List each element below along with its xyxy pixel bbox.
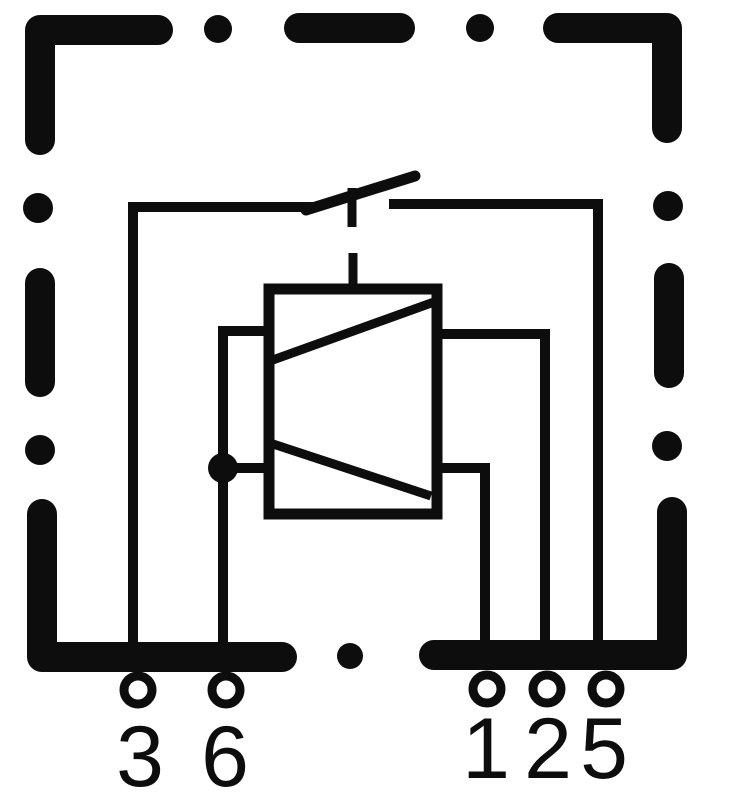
wire-coil-right-to-pin1 xyxy=(437,468,485,650)
frame-right-dot-lower xyxy=(652,431,682,461)
wire-coil-right-to-pin2 xyxy=(437,334,545,650)
pin-label-6: 6 xyxy=(201,709,249,800)
frame-bottom-left-corner-bar xyxy=(42,514,282,657)
terminal-ring-icon-pin2 xyxy=(533,675,561,703)
pin-label-3: 3 xyxy=(116,709,164,800)
frame-top-left-corner-dash xyxy=(40,30,158,140)
frame-top-dot-right xyxy=(466,14,494,42)
relay-schematic-canvas: 3 6 1 2 5 xyxy=(0,0,729,800)
dashed-frame-icon xyxy=(23,14,683,669)
frame-left-dot-lower xyxy=(25,435,55,465)
frame-bottom-right-corner-bar xyxy=(434,512,672,655)
wire-coil-left-to-pin6 xyxy=(223,331,269,650)
junction-dot-icon xyxy=(208,453,238,483)
pin-labels: 3 6 1 2 5 xyxy=(116,701,628,800)
internal-circuit xyxy=(133,176,598,650)
relay-wiring-diagram-page: 3 6 1 2 5 xyxy=(0,0,729,800)
wire-switch-to-pin5 xyxy=(389,204,598,650)
frame-top-dot-left xyxy=(204,15,232,43)
coil-lower-diagonal xyxy=(270,443,431,496)
frame-top-right-corner-dash xyxy=(558,28,667,128)
frame-bottom-middle-dot xyxy=(337,643,363,669)
terminal-ring-icon-pin5 xyxy=(592,675,620,703)
pin-label-2: 2 xyxy=(524,701,572,797)
terminal-ring-icon-pin1 xyxy=(473,675,501,703)
frame-right-dot-upper xyxy=(653,191,683,221)
terminal-ring-icon-pin3 xyxy=(124,676,152,704)
terminal-ring-icon-pin6 xyxy=(212,676,240,704)
terminals xyxy=(124,675,620,704)
pin-label-1: 1 xyxy=(462,701,510,797)
pin-label-5: 5 xyxy=(580,701,628,797)
coil-upper-diagonal xyxy=(270,302,434,361)
frame-left-dot-upper xyxy=(23,193,53,223)
coil-box-icon xyxy=(269,289,437,514)
